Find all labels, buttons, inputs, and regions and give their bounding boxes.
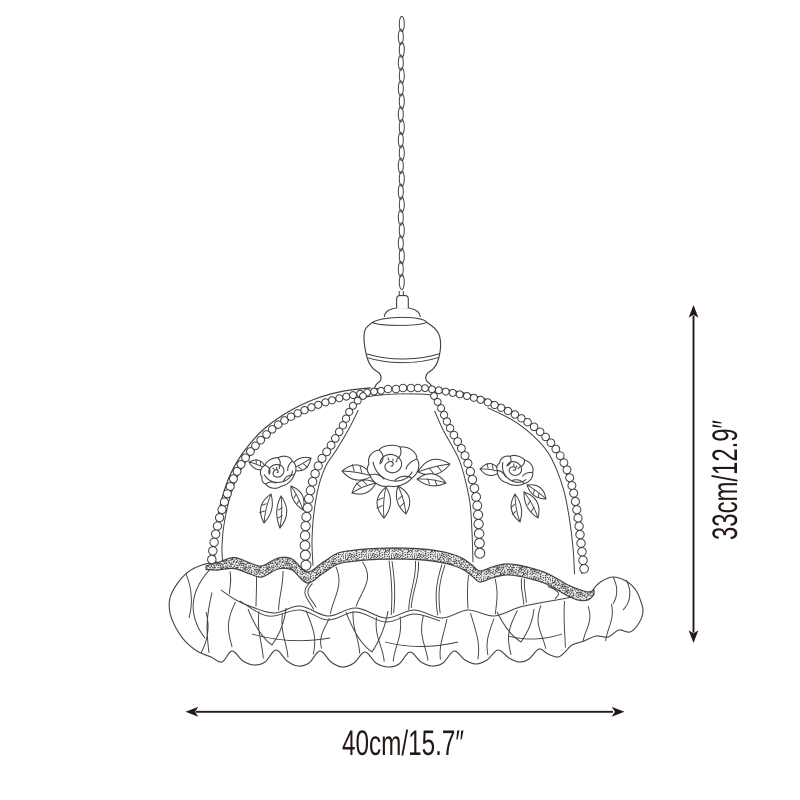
svg-text:33cm/12.9″: 33cm/12.9″ [706,420,745,540]
svg-text:40cm/15.7″: 40cm/15.7″ [342,724,464,763]
